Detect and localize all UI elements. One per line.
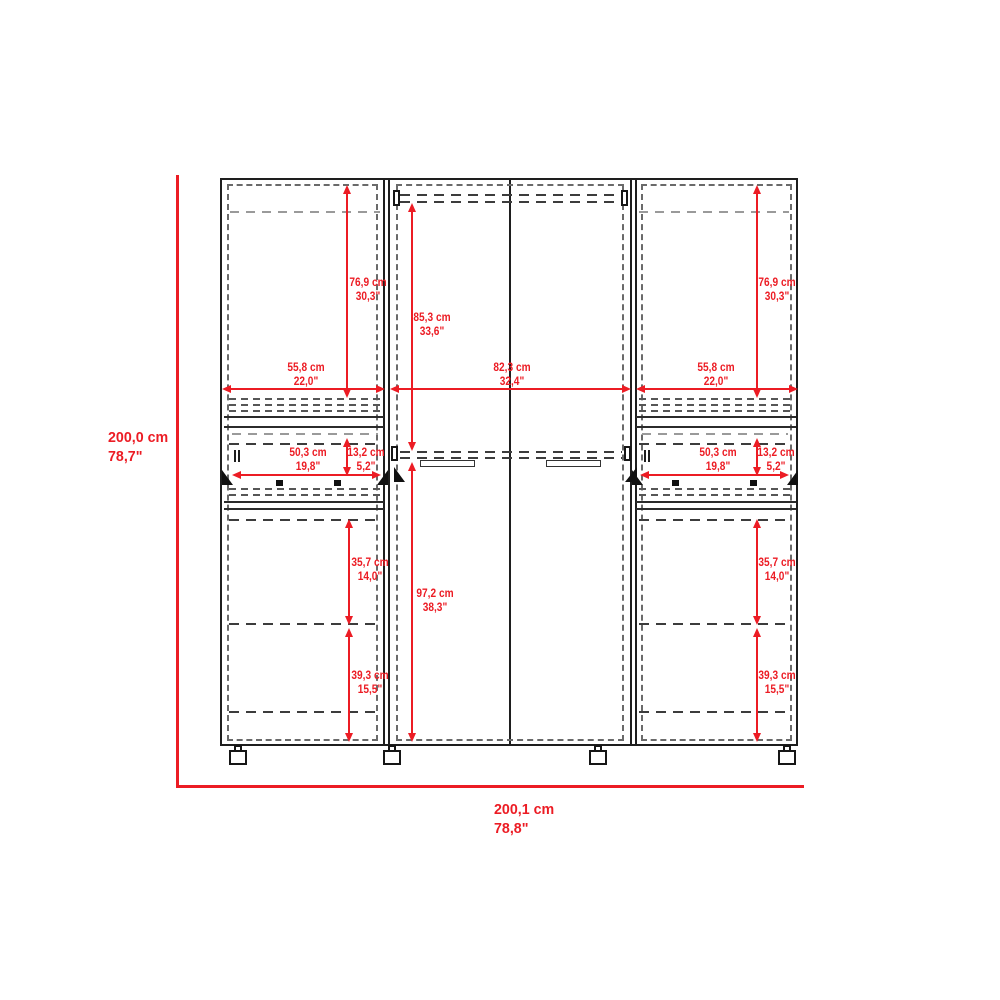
- right-hatch-band-row: [639, 410, 791, 412]
- arrowhead: [408, 462, 416, 471]
- left-hatch-band-row: [229, 494, 381, 496]
- dim-in: 33,6": [413, 325, 450, 339]
- left-drawer-top-dash: [229, 443, 381, 445]
- right-shelf-dash: [639, 519, 791, 521]
- arrow-drawer-width-right: [646, 474, 782, 476]
- dim-label-total-height: 200,0 cm 78,7": [108, 429, 168, 467]
- right-board-line: [636, 426, 796, 428]
- arrowhead: [622, 385, 631, 393]
- dim-label-shelf-upper-right: 35,7 cm 14,0": [758, 556, 795, 584]
- arrowhead: [232, 471, 241, 479]
- left-shelf-dash: [229, 623, 381, 625]
- arrowhead: [343, 185, 351, 194]
- arrowhead: [408, 203, 416, 212]
- arrowhead: [345, 616, 353, 625]
- arrow-drawer-width-left: [238, 474, 374, 476]
- arrowhead: [390, 385, 399, 393]
- dim-cm: 97,2 cm: [416, 587, 453, 601]
- right-drawer-glide-block: [672, 480, 679, 486]
- dim-label-drawer-width-right: 50,3 cm 19,8": [699, 446, 736, 474]
- left-board-line: [224, 501, 384, 503]
- right-hatch-band-row: [639, 494, 791, 496]
- left-hatch-band-row: [229, 404, 381, 406]
- right-top-shelf-dash: [639, 211, 789, 213]
- arrowhead: [408, 733, 416, 742]
- dim-label-side-width-left: 55,8 cm 22,0": [287, 361, 324, 389]
- arrow-door-height-left: [346, 191, 348, 391]
- middle-rod-bracket: [624, 446, 631, 461]
- arrowhead: [640, 471, 649, 479]
- middle-rod-bracket: [391, 446, 398, 461]
- dim-cm: 55,8 cm: [287, 361, 324, 375]
- left-shelf-dash: [229, 519, 381, 521]
- left-top-shelf-dash: [230, 211, 380, 213]
- total-height-extent-line: [176, 175, 179, 788]
- dim-in: 30,3": [349, 290, 386, 304]
- arrowhead: [753, 628, 761, 637]
- left-drawer-tick: [238, 450, 240, 462]
- right-shelf-dash: [639, 623, 791, 625]
- arrowhead: [345, 628, 353, 637]
- dim-in: 14,0": [758, 570, 795, 584]
- left-hatch-band-row: [229, 398, 381, 400]
- right-hatch-band-row: [639, 404, 791, 406]
- left-drawer-tick: [234, 450, 236, 462]
- arrowhead: [753, 733, 761, 742]
- wardrobe-dimension-diagram: 200,0 cm 78,7" 200,1 cm 78,8": [0, 0, 1000, 1000]
- dim-in: 5,2": [347, 460, 384, 474]
- divider-right-panel-b: [635, 178, 637, 746]
- arrowhead: [636, 385, 645, 393]
- right-board-line: [636, 416, 796, 418]
- total-width-extent-line: [176, 785, 804, 788]
- dim-label-drawer-height-right: 13,2 cm 5,2": [757, 446, 794, 474]
- right-board-line: [636, 508, 796, 510]
- dim-cm: 50,3 cm: [699, 446, 736, 460]
- top-hanging-rod-line: [400, 201, 622, 203]
- dim-in: 19,8": [699, 460, 736, 474]
- foot-body: [229, 750, 247, 765]
- dim-label-center-lower-height: 97,2 cm 38,3": [416, 587, 453, 615]
- dim-in: 78,7": [108, 448, 168, 467]
- dim-label-shelf-lower-right: 39,3 cm 15,5": [758, 669, 795, 697]
- right-hatch-band-row: [639, 488, 791, 490]
- left-drawer-inner-dash: [232, 433, 378, 435]
- middle-hanging-rod-line: [400, 457, 622, 459]
- dim-cm: 200,1 cm: [494, 801, 554, 820]
- dim-cm: 55,8 cm: [697, 361, 734, 375]
- dim-cm: 39,3 cm: [351, 669, 388, 683]
- dim-label-door-height-left: 76,9 cm 30,3": [349, 276, 386, 304]
- middle-rod-support: [420, 460, 475, 467]
- dim-cm: 82,3 cm: [493, 361, 530, 375]
- left-drawer-glide-block: [334, 480, 341, 486]
- foot-body: [589, 750, 607, 765]
- dim-cm: 50,3 cm: [289, 446, 326, 460]
- foot-body: [383, 750, 401, 765]
- arrowhead: [753, 519, 761, 528]
- arrowhead: [753, 616, 761, 625]
- top-rod-bracket: [393, 190, 400, 206]
- dim-in: 15,5": [758, 683, 795, 697]
- arrowhead: [222, 385, 231, 393]
- right-drawer-tick: [644, 450, 646, 462]
- dim-cm: 13,2 cm: [347, 446, 384, 460]
- dim-cm: 35,7 cm: [758, 556, 795, 570]
- left-hatch-band-row: [229, 410, 381, 412]
- dim-cm: 200,0 cm: [108, 429, 168, 448]
- arrowhead: [376, 385, 385, 393]
- right-hatch-band-row: [639, 398, 791, 400]
- dim-label-drawer-height-left: 13,2 cm 5,2": [347, 446, 384, 474]
- top-rod-bracket: [621, 190, 628, 206]
- divider-left-panel-b: [388, 178, 390, 746]
- dim-in: 22,0": [697, 375, 734, 389]
- left-board-line: [224, 508, 384, 510]
- dim-label-shelf-lower-left: 39,3 cm 15,5": [351, 669, 388, 697]
- dim-cm: 76,9 cm: [349, 276, 386, 290]
- dim-label-shelf-upper-left: 35,7 cm 14,0": [351, 556, 388, 584]
- arrowhead: [345, 733, 353, 742]
- left-board-line: [224, 426, 384, 428]
- dim-cm: 39,3 cm: [758, 669, 795, 683]
- dim-label-center-width: 82,3 cm 32,4": [493, 361, 530, 389]
- middle-rod-support: [546, 460, 601, 467]
- arrowhead: [408, 442, 416, 451]
- dim-in: 78,8": [494, 820, 554, 839]
- dim-label-center-upper-height: 85,3 cm 33,6": [413, 311, 450, 339]
- dim-in: 38,3": [416, 601, 453, 615]
- right-shelf-dash: [639, 711, 791, 713]
- right-drawer-inner-dash: [642, 433, 788, 435]
- left-shelf-dash: [229, 711, 381, 713]
- arrow-center-lower: [411, 468, 413, 736]
- right-board-line: [636, 501, 796, 503]
- dim-in: 19,8": [289, 460, 326, 474]
- dim-cm: 85,3 cm: [413, 311, 450, 325]
- divider-right-panel-a: [630, 178, 632, 746]
- dim-in: 30,3": [758, 290, 795, 304]
- dim-in: 14,0": [351, 570, 388, 584]
- dim-cm: 76,9 cm: [758, 276, 795, 290]
- dim-in: 22,0": [287, 375, 324, 389]
- dim-in: 15,5": [351, 683, 388, 697]
- dim-in: 32,4": [493, 375, 530, 389]
- foot-body: [778, 750, 796, 765]
- right-drawer-top-dash: [639, 443, 791, 445]
- dim-cm: 13,2 cm: [757, 446, 794, 460]
- middle-hanging-rod-line: [400, 451, 622, 453]
- arrow-shelf-lower-left: [348, 634, 350, 736]
- arrowhead: [753, 389, 761, 398]
- arrow-shelf-upper-left: [348, 525, 350, 619]
- dim-label-door-height-right: 76,9 cm 30,3": [758, 276, 795, 304]
- dim-label-side-width-right: 55,8 cm 22,0": [697, 361, 734, 389]
- arrowhead: [789, 385, 798, 393]
- left-hatch-band-row: [229, 488, 381, 490]
- dim-cm: 35,7 cm: [351, 556, 388, 570]
- arrowhead: [345, 519, 353, 528]
- left-board-line: [224, 416, 384, 418]
- arrowhead: [343, 389, 351, 398]
- top-hanging-rod-line: [400, 194, 622, 196]
- dim-label-drawer-width-left: 50,3 cm 19,8": [289, 446, 326, 474]
- left-drawer-glide-block: [276, 480, 283, 486]
- right-drawer-glide-block: [750, 480, 757, 486]
- arrowhead: [753, 185, 761, 194]
- dim-label-total-width: 200,1 cm 78,8": [494, 801, 554, 839]
- right-drawer-tick: [648, 450, 650, 462]
- dim-in: 5,2": [757, 460, 794, 474]
